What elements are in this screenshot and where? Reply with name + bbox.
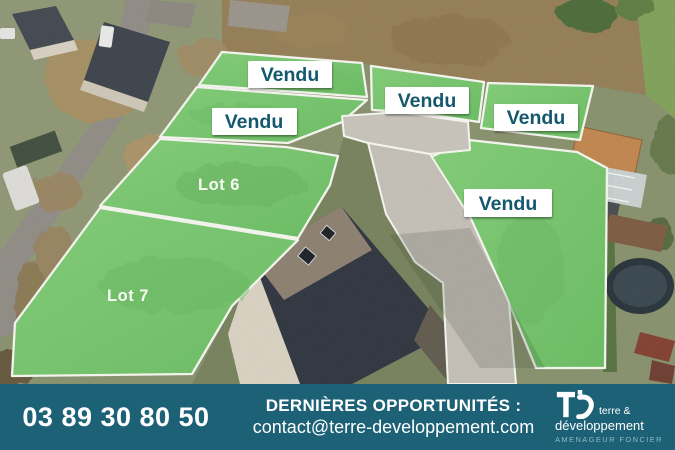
aerial-photo: Vendu Vendu Vendu Vendu Vendu Lot 6 Lot …: [0, 0, 675, 384]
logo-tagline: AMENAGEUR FONCIER: [555, 435, 661, 444]
sold-label-text: Vendu: [398, 90, 457, 112]
td-logo-icon: [555, 390, 595, 419]
sold-label-text: Vendu: [479, 193, 538, 215]
company-logo: terre & développement AMENAGEUR FONCIER: [555, 390, 675, 445]
photo-grain: [0, 0, 675, 384]
logo-name-bottom: développement: [555, 419, 661, 434]
email-address: contact@terre-developpement.com: [232, 417, 555, 438]
sold-label-text: Vendu: [507, 107, 566, 129]
contact-banner: 03 89 30 80 50 DERNIÈRES OPPORTUNITÉS : …: [0, 384, 675, 450]
sold-label-4: Vendu: [494, 104, 578, 131]
lot-7-label: Lot 7: [107, 287, 149, 305]
logo-name-top: terre &: [599, 406, 631, 419]
sold-label-3: Vendu: [385, 87, 469, 114]
lot-6-label: Lot 6: [198, 176, 240, 194]
sold-label-5: Vendu: [464, 189, 552, 217]
sold-label-1: Vendu: [248, 61, 332, 88]
sold-label-text: Vendu: [225, 111, 284, 133]
banner-headline: DERNIÈRES OPPORTUNITÉS :: [232, 396, 555, 416]
sold-label-text: Vendu: [261, 64, 320, 86]
sold-label-2: Vendu: [212, 108, 297, 135]
contact-block: DERNIÈRES OPPORTUNITÉS : contact@terre-d…: [232, 396, 555, 437]
phone-number: 03 89 30 80 50: [0, 402, 232, 433]
promo-image: Vendu Vendu Vendu Vendu Vendu Lot 6 Lot …: [0, 0, 675, 450]
